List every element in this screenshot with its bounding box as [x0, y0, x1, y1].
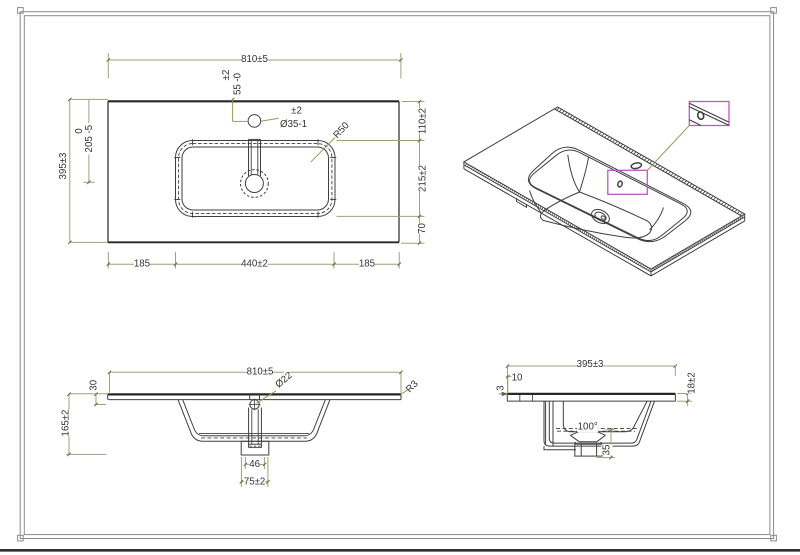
svg-text:±2: ±2 [291, 105, 302, 116]
svg-text:185: 185 [134, 259, 150, 270]
svg-text:165±2: 165±2 [60, 410, 71, 437]
svg-text:35: 35 [602, 445, 613, 456]
svg-text:205 -5: 205 -5 [84, 125, 95, 152]
svg-text:810±5: 810±5 [247, 367, 274, 378]
svg-text:395±3: 395±3 [58, 153, 69, 180]
svg-text:±2: ±2 [221, 70, 232, 81]
svg-text:18±2: 18±2 [686, 372, 697, 393]
svg-text:75±2: 75±2 [244, 476, 265, 487]
svg-text:215±2: 215±2 [418, 165, 429, 192]
svg-text:185: 185 [359, 259, 375, 270]
svg-text:395±3: 395±3 [577, 359, 604, 370]
svg-text:46: 46 [249, 459, 260, 470]
svg-text:30: 30 [88, 379, 99, 390]
svg-text:70: 70 [417, 223, 428, 234]
svg-text:110±2: 110±2 [418, 108, 429, 134]
svg-text:Ø35-1: Ø35-1 [280, 119, 307, 130]
svg-text:3: 3 [495, 385, 506, 390]
svg-text:100°: 100° [578, 421, 598, 432]
svg-text:55 -0: 55 -0 [233, 72, 244, 95]
svg-text:10: 10 [512, 373, 523, 384]
svg-text:810±5: 810±5 [241, 54, 268, 65]
svg-text:440±2: 440±2 [241, 259, 268, 270]
